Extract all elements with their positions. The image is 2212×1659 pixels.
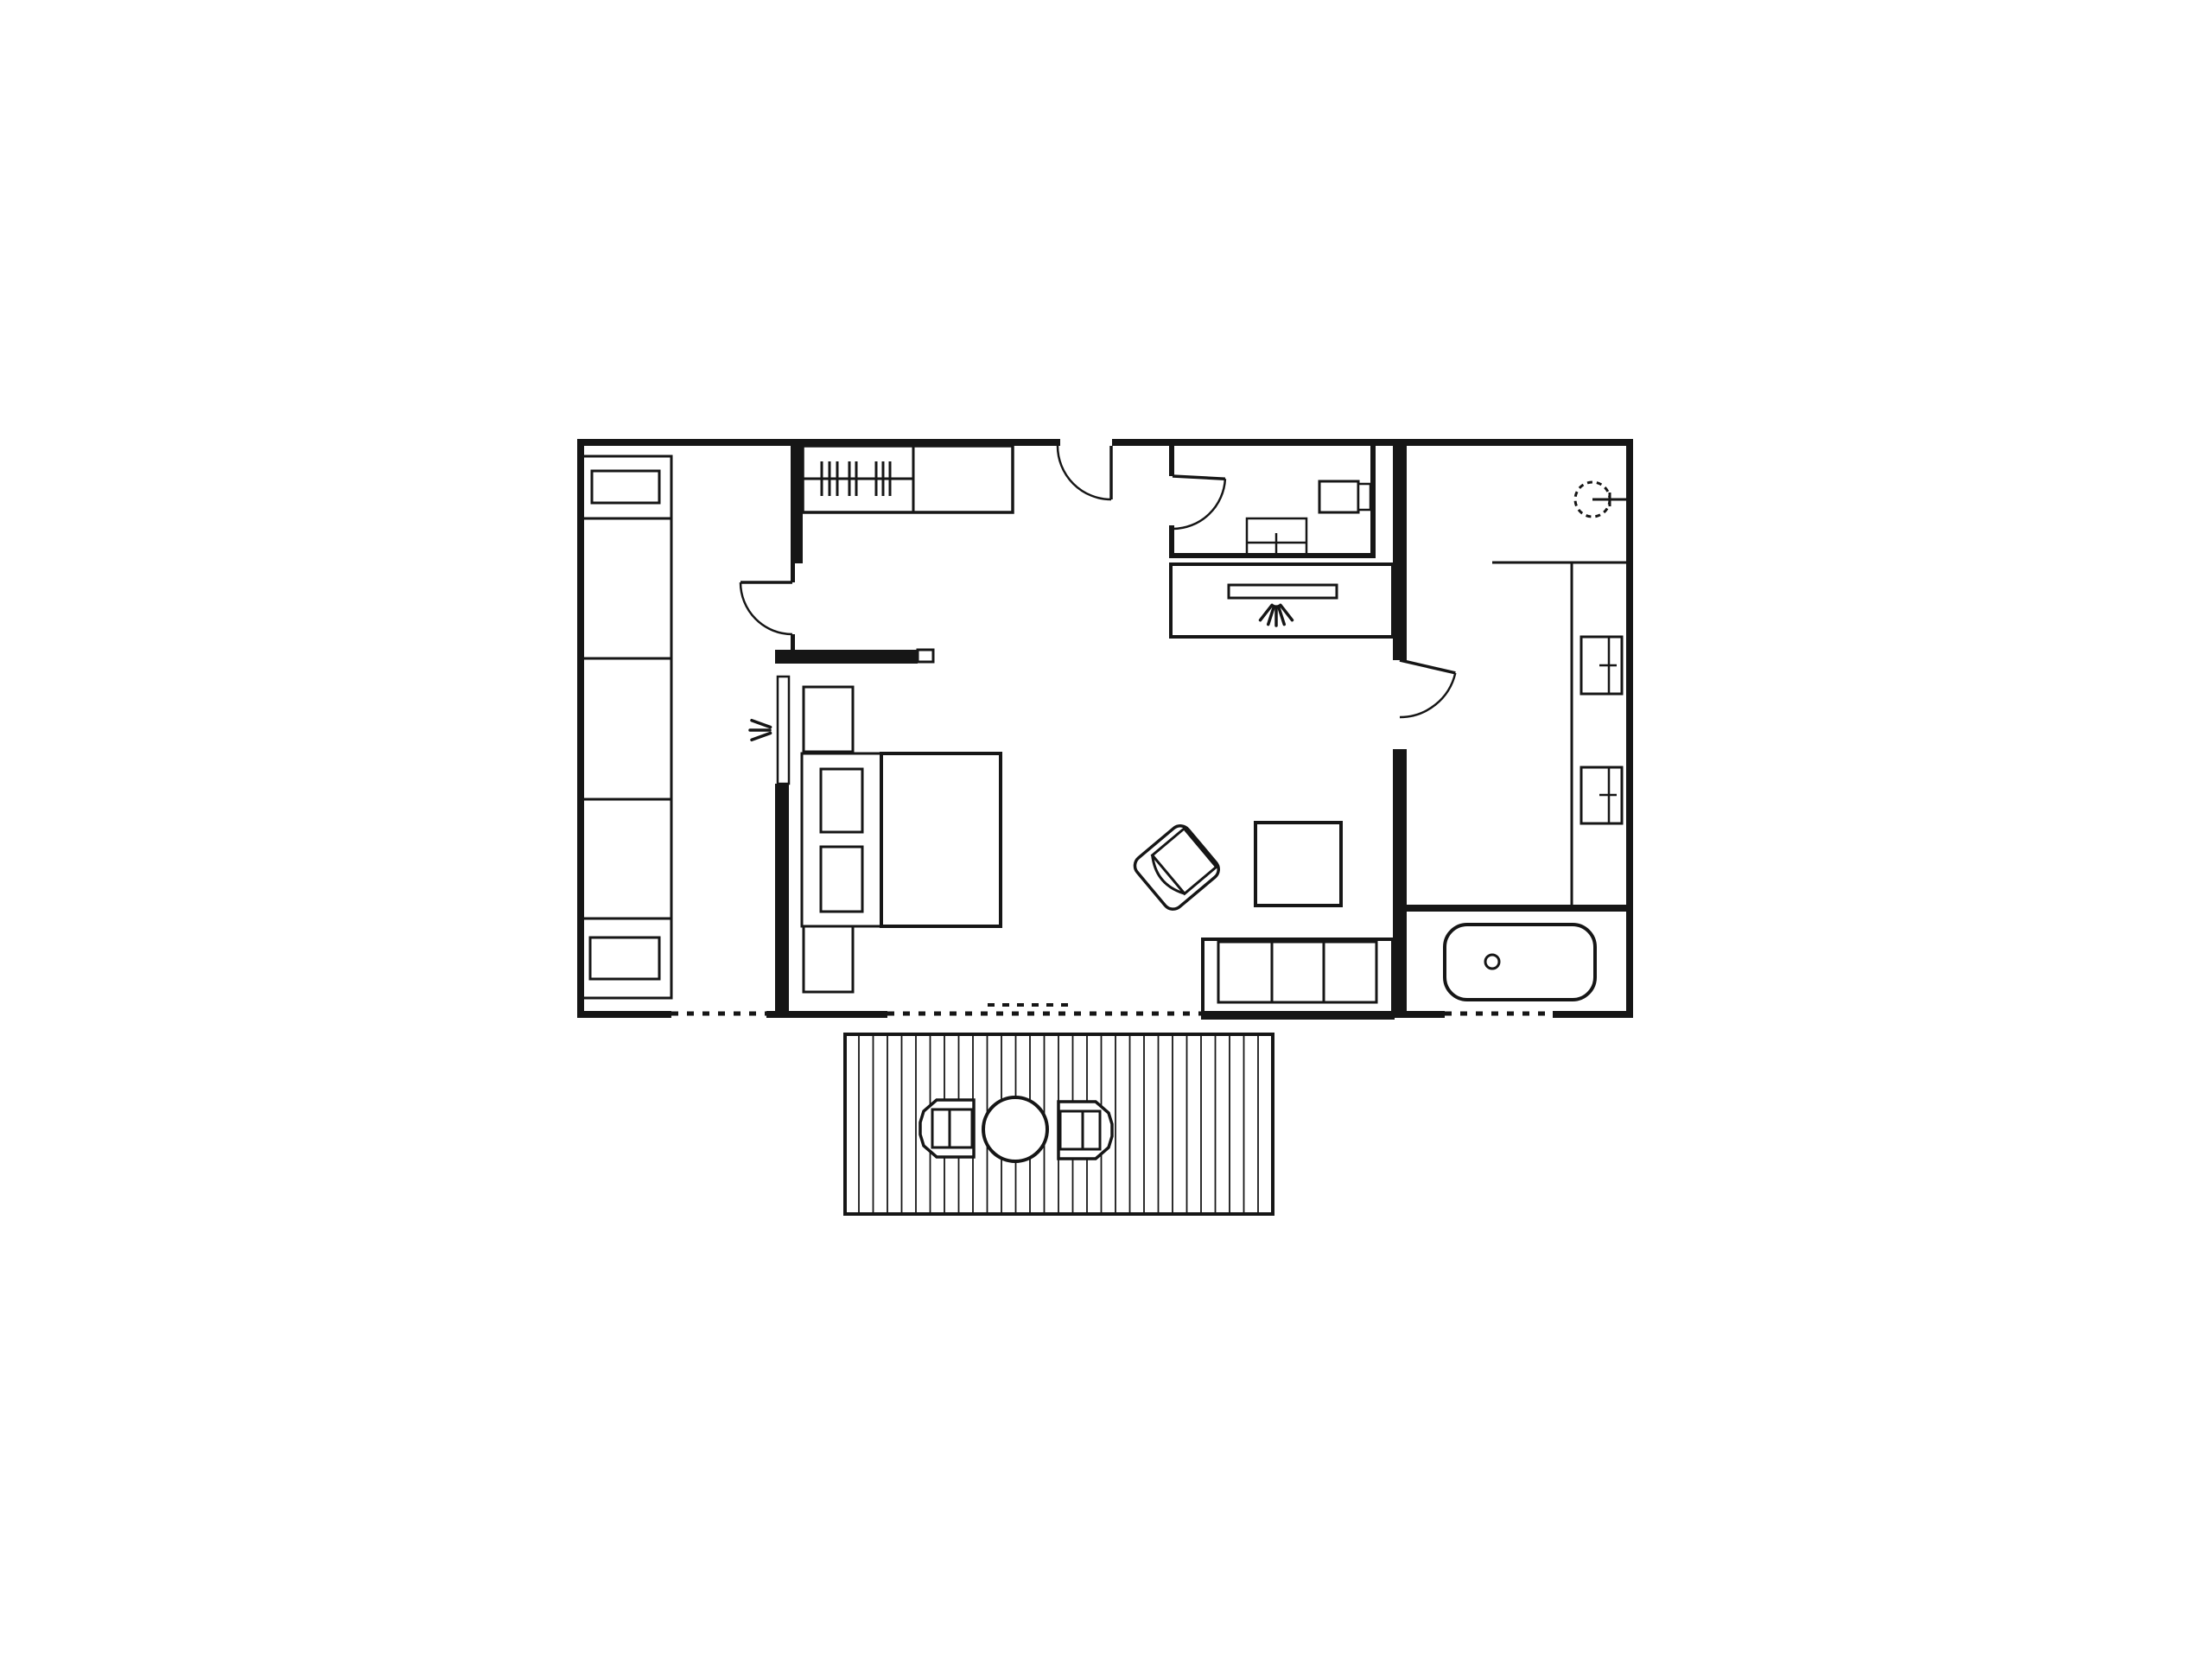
deck-chair-seat <box>1060 1111 1100 1149</box>
wc-toilet-tank <box>1358 484 1370 510</box>
wardrobe-drawer-bottom <box>590 938 659 979</box>
deck-chair-seat <box>932 1109 972 1147</box>
bed-pillow-2 <box>821 847 862 912</box>
fireplace-firebox <box>1229 585 1337 598</box>
bedroom-wall-top <box>775 650 918 664</box>
wc-door-swing-arc <box>1173 479 1225 529</box>
wc-door-leaf <box>1173 476 1225 479</box>
bedroom-wall-top-end-cap <box>918 650 933 662</box>
armchair <box>1131 822 1224 913</box>
sliding-door-light-symbol-ray <box>752 733 771 740</box>
outer-wall-bottom-seg-4 <box>1553 1011 1633 1018</box>
nightstand-bottom <box>804 926 853 992</box>
sofa-seat-cushions <box>1218 942 1376 1002</box>
fireplace-counter <box>1171 564 1393 637</box>
wardrobe-drawer-top <box>592 471 659 503</box>
side-table <box>1255 823 1341 906</box>
bathroom-door-swing-arc <box>1400 673 1455 717</box>
deck-chair-left <box>920 1100 974 1157</box>
deck-round-table <box>983 1097 1047 1161</box>
bathroom-interior-wall <box>1407 905 1633 912</box>
bathroom-divider-wall-lower <box>1393 749 1407 1018</box>
wc-wall-left-upper <box>1169 439 1174 476</box>
bathtub <box>1445 925 1595 1000</box>
hall-door-jamb-bottom <box>791 634 795 650</box>
outer-wall-top-left-of-entry <box>577 439 1060 446</box>
outer-wall-right <box>1626 439 1633 1018</box>
wardrobe-column <box>582 456 671 998</box>
wc-door <box>1173 476 1225 529</box>
deck-chair-right <box>1058 1102 1112 1159</box>
deck <box>845 1034 1273 1214</box>
hall-door <box>741 582 792 634</box>
wc-wall-right <box>1370 439 1376 558</box>
wc-toilet-bowl <box>1319 481 1358 512</box>
bathroom-door <box>1400 660 1455 717</box>
bed-pillow-1 <box>821 769 862 832</box>
sliding-door-light-symbol-ray <box>752 721 771 728</box>
sliding-door-light-symbol <box>750 721 771 741</box>
entry-door <box>1058 446 1111 499</box>
floor-plan <box>0 0 2212 1659</box>
bedroom-wall-left <box>775 784 789 1013</box>
floor-plan-drawing <box>0 0 2212 1659</box>
hall-door-jamb-top <box>791 563 795 582</box>
outer-wall-left <box>577 439 584 1018</box>
nightstand-top <box>804 687 853 752</box>
outer-wall-bottom-seg-3 <box>1201 1011 1445 1018</box>
wc-wall-bottom <box>1169 553 1376 558</box>
bed-mattress <box>881 753 1001 926</box>
hall-door-swing-arc <box>741 582 792 634</box>
entry-door-swing-arc <box>1058 446 1111 499</box>
bathroom-divider-wall-upper <box>1393 439 1407 660</box>
entry-closet-wall-stub <box>791 439 803 563</box>
sliding-door-panel <box>778 677 789 784</box>
bathroom-door-leaf <box>1400 660 1455 673</box>
outer-wall-bottom-seg-1 <box>577 1011 671 1018</box>
